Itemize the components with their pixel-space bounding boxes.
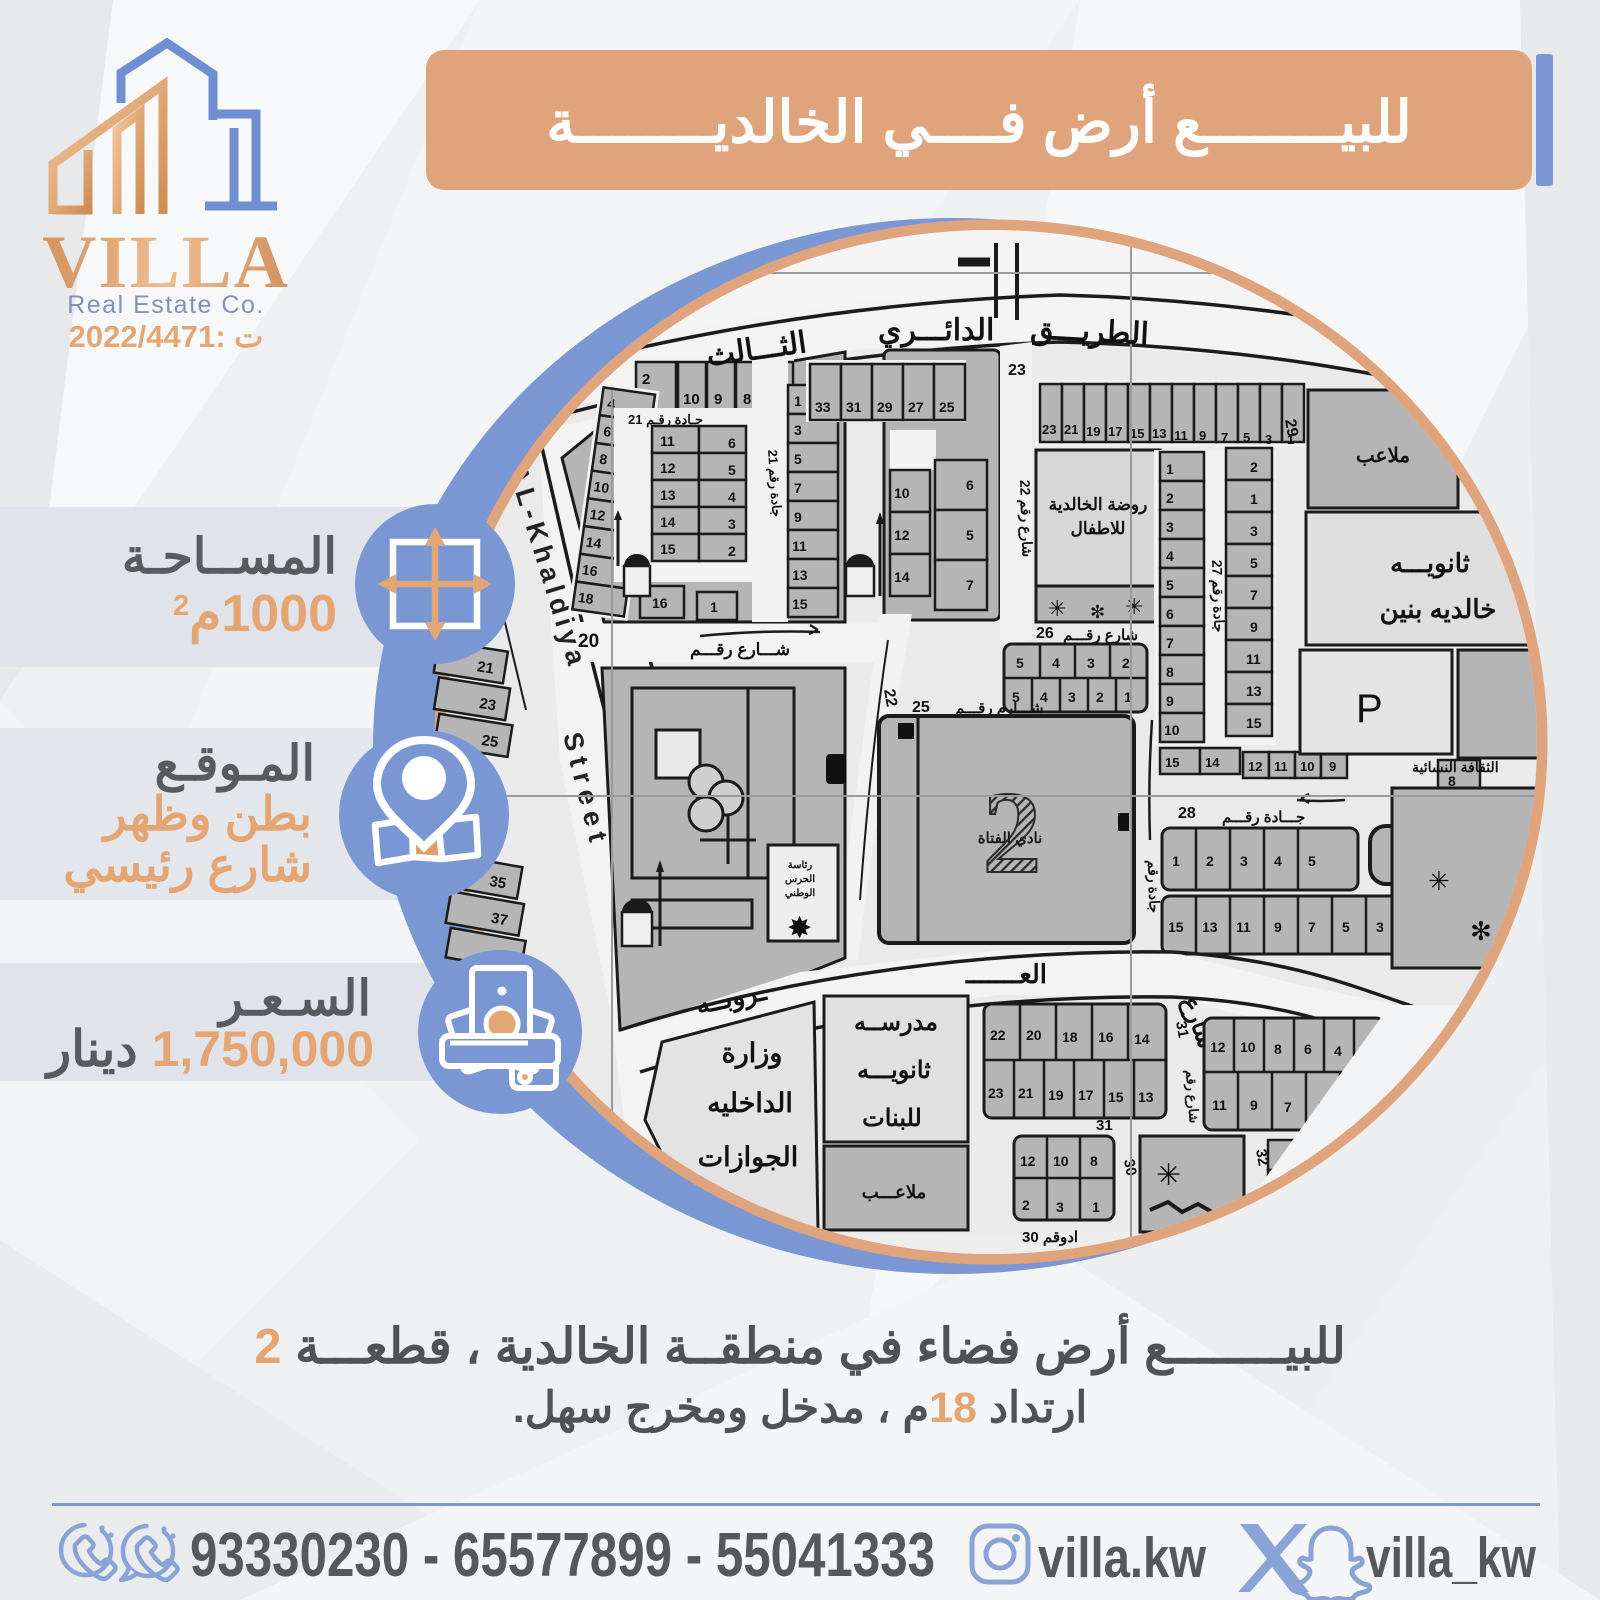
svg-text:93330230 - 65577899 - 55041333: 93330230 - 65577899 - 55041333 [190,1521,935,1590]
svg-text:villa.kw: villa.kw [1038,1526,1207,1590]
svg-text:villa_kw: villa_kw [1366,1526,1537,1590]
